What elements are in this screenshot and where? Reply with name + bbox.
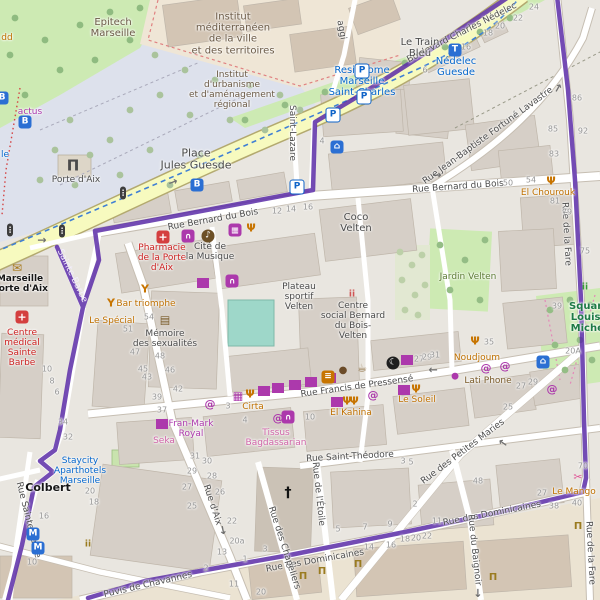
tree-dot: [547, 307, 554, 314]
tree-dot: [212, 77, 219, 84]
porte-daix-monument-building: [58, 155, 91, 177]
tree-dot: [52, 147, 59, 154]
base-map-svg: [0, 0, 600, 600]
tree-dot: [247, 82, 254, 89]
tree-dot: [507, 15, 514, 22]
tree-dot: [567, 297, 574, 304]
tree-dot: [409, 262, 416, 269]
tree-dot: [412, 292, 419, 299]
tree-dot: [587, 302, 594, 309]
tree-dot: [147, 147, 154, 154]
tree-dot: [127, 37, 134, 44]
tree-dot: [152, 52, 159, 59]
tree-dot: [217, 162, 224, 169]
tree-dot: [562, 367, 569, 374]
tree-dot: [7, 52, 14, 59]
tree-dot: [552, 342, 559, 349]
tree-dot: [22, 92, 29, 99]
tree-dot: [415, 312, 422, 319]
route-polyline-porte-daix-spur: [57, 247, 83, 307]
tree-dot: [42, 37, 49, 44]
tree-dot: [437, 242, 444, 249]
tree-dot: [262, 127, 269, 134]
tree-dot: [447, 287, 454, 294]
tree-dot: [477, 297, 484, 304]
tree-dot: [422, 282, 429, 289]
tree-dot: [77, 22, 84, 29]
tree-dot: [187, 112, 194, 119]
tree-dot: [137, 5, 144, 12]
tree-dot: [117, 172, 124, 179]
tree-dot: [242, 117, 249, 124]
tree-dot: [402, 307, 409, 314]
tree-dot: [197, 152, 204, 159]
tree-dot: [227, 117, 234, 124]
tree-dot: [12, 15, 19, 22]
tree-dot: [92, 57, 99, 64]
map-canvas[interactable]: Boulevard Charles NédelecRue Bernard du …: [0, 0, 600, 600]
tree-dot: [107, 9, 114, 16]
tree-dot: [67, 117, 74, 124]
tree-dot: [157, 92, 164, 99]
tree-dot: [442, 44, 449, 51]
tree-dot: [182, 67, 189, 74]
tree-dot: [72, 182, 79, 189]
tree-dot: [589, 357, 596, 364]
tree-dot: [107, 137, 114, 144]
tree-dot: [57, 67, 64, 74]
tree-dot: [282, 102, 289, 109]
tree-dot: [397, 249, 404, 256]
tree-dot: [277, 92, 284, 99]
tree-dot: [297, 107, 304, 114]
tree-dot: [399, 277, 406, 284]
tree-dot: [37, 177, 44, 184]
tree-dot: [362, 75, 369, 82]
tree-dot: [462, 257, 469, 264]
tree-dot: [127, 107, 134, 114]
tree-dot: [167, 182, 174, 189]
tree-dot: [322, 89, 329, 96]
tree-dot: [482, 237, 489, 244]
tree-dot: [419, 252, 426, 259]
tree-dot: [87, 152, 94, 159]
sports-pitch: [228, 300, 274, 346]
